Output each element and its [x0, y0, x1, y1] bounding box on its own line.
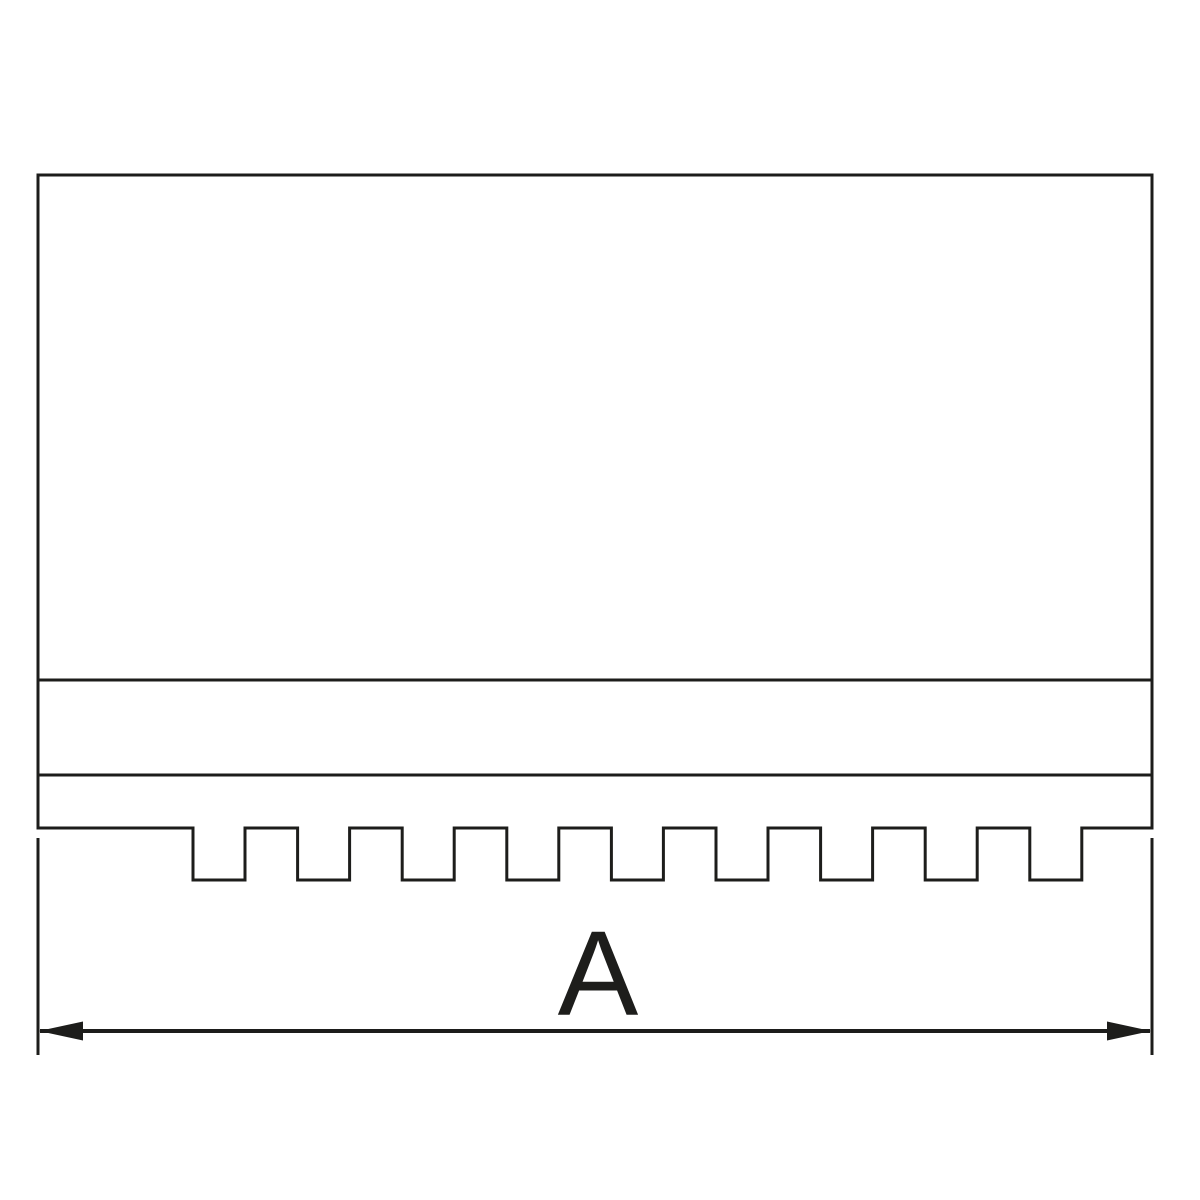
dimension-arrowhead-right [1107, 1022, 1151, 1041]
drawing-canvas: A [0, 0, 1200, 1200]
dimension-arrowhead-left [39, 1022, 83, 1041]
technical-drawing: A [0, 0, 1200, 1200]
dimension-label: A [558, 905, 639, 1041]
